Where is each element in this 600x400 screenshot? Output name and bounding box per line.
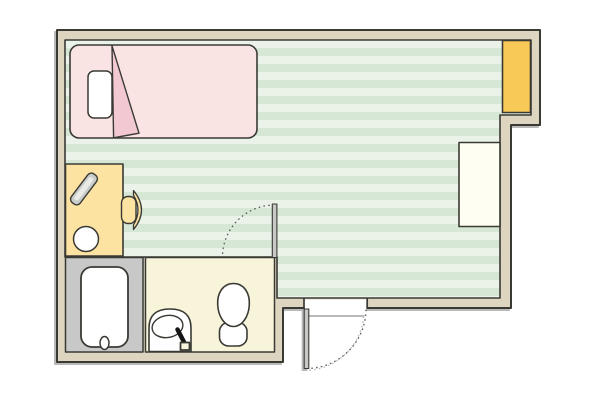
- tub: [81, 267, 128, 347]
- desk: [66, 164, 124, 256]
- toilet: [218, 284, 250, 347]
- entrance-door-swing: [307, 309, 367, 369]
- floor-plan-page: [0, 0, 600, 400]
- cabinet: [459, 143, 500, 227]
- tub-drain: [100, 337, 109, 350]
- bed: [70, 45, 257, 138]
- pillow: [88, 71, 112, 118]
- chair-seat: [122, 197, 137, 224]
- entrance-door-leaf: [304, 309, 309, 369]
- entrance-opening: [305, 299, 367, 315]
- floor-plan: [0, 0, 600, 400]
- entrance-door: [304, 309, 366, 369]
- faucet-base: [181, 343, 190, 351]
- storage-closet: [503, 41, 531, 113]
- washbasin: [149, 309, 191, 352]
- bathtub: [81, 267, 128, 350]
- toilet-bowl: [218, 284, 250, 327]
- round-stool: [74, 227, 99, 252]
- washroom-door-leaf: [272, 204, 277, 258]
